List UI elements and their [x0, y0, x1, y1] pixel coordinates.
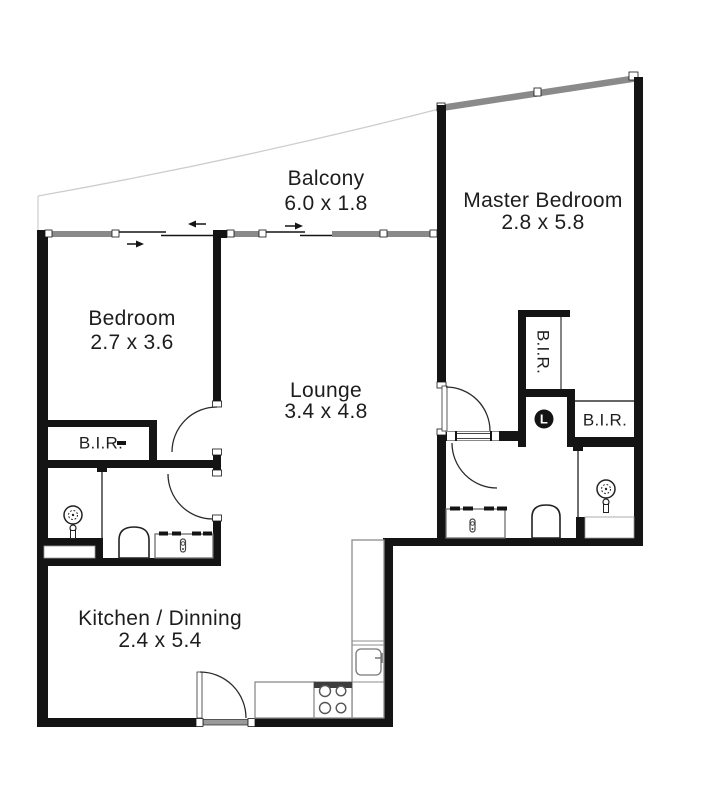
window-glass — [332, 231, 381, 237]
wall-bir-master-left — [518, 310, 526, 447]
stove-back-band — [314, 682, 352, 688]
wardrobe-handle — [117, 441, 126, 445]
slide-arrow-head — [136, 241, 144, 248]
wall-master-left-upper — [437, 105, 446, 385]
wall-bathroom-bottom — [37, 558, 221, 566]
door-arc-ensuite — [452, 443, 497, 488]
balcony-edge-curve — [38, 108, 443, 196]
door-jamb — [213, 401, 222, 407]
wall-bedroom-lounge-lower — [213, 518, 221, 566]
window-jamb — [259, 230, 266, 237]
wall-bedroom-lounge-upper — [213, 230, 221, 405]
stove-burner — [336, 703, 346, 713]
shower-head-dot — [72, 514, 74, 516]
kitchen-sink — [356, 649, 381, 675]
window-glass — [234, 231, 259, 237]
wall-bir-bedroom-right — [149, 420, 157, 462]
toilet-ensuite — [532, 505, 560, 538]
wall-bir-bedroom-top — [37, 420, 157, 427]
door-jamb — [213, 470, 222, 476]
wall-under-bathrooms — [383, 538, 643, 546]
door-jamb — [213, 515, 222, 521]
stove-burner — [336, 686, 346, 696]
shower-mixer-base — [71, 531, 76, 539]
slide-arrow-head — [295, 223, 303, 230]
vanity-tap-mark — [203, 532, 212, 536]
kitchen-counter-bottom — [255, 682, 315, 718]
window-jamb — [227, 230, 234, 237]
wall-niche — [585, 517, 634, 538]
kitchen-counter-strip — [352, 540, 384, 718]
window-jamb — [430, 230, 437, 237]
door-jamb — [213, 449, 222, 455]
vanity-tap-mark — [497, 507, 507, 511]
floorplan-svg — [0, 0, 703, 800]
entry-door-rail — [203, 720, 248, 726]
screen-handle — [97, 468, 107, 472]
wall-master-left-lower — [437, 432, 446, 546]
door-arc-bedroom — [172, 407, 217, 452]
vanity-tap-mark — [172, 532, 181, 536]
window-jamb — [45, 230, 52, 237]
door-opening — [212, 472, 222, 518]
wall-bathroom-top — [37, 460, 221, 468]
vanity-tap-mark — [159, 532, 168, 536]
slider-jamb-sep — [490, 431, 492, 441]
shower-mixer-base — [604, 505, 609, 513]
door-arc-entry — [200, 672, 246, 718]
vanity-tap-mark — [484, 507, 494, 511]
vanity-tap-mark — [192, 532, 201, 536]
door-jamb — [248, 719, 255, 727]
wall-left — [37, 230, 48, 727]
laundry-badge-circle — [535, 410, 554, 429]
stove-burner — [320, 686, 331, 697]
stove-burner — [320, 703, 331, 714]
window-glass — [387, 231, 431, 237]
vanity-tap-mark — [463, 507, 473, 511]
window-jamb — [112, 230, 119, 237]
toilet-bathroom — [119, 527, 149, 558]
shower-head-dot — [605, 488, 607, 490]
wall-niche — [44, 546, 95, 558]
window-jamb — [534, 88, 541, 96]
wall-bir-ensuite-bottom — [567, 437, 643, 447]
slider-jamb-sep — [455, 431, 457, 441]
wall-niche-stub — [95, 546, 103, 558]
window-glass — [52, 231, 112, 237]
vanity-faucet-dot — [182, 548, 184, 550]
wall-master-right — [634, 77, 643, 546]
window-jamb — [380, 230, 387, 237]
door-arc-master — [446, 387, 490, 431]
vanity-faucet-dot — [472, 528, 474, 530]
wall-ensuite-niche-stub — [576, 517, 585, 540]
slider-door-panel — [456, 434, 491, 439]
wall-bir-master-bottom — [518, 389, 575, 397]
door-leaf-master — [442, 386, 447, 431]
floorplan: Balcony6.0 x 1.8Master Bedroom2.8 x 5.8B… — [0, 0, 703, 800]
door-leaf-entry — [197, 672, 202, 718]
wall-shower-nook — [37, 538, 103, 546]
door-arc-bathroom — [168, 474, 213, 519]
slide-arrow-head — [188, 221, 196, 228]
screen-handle — [573, 447, 583, 451]
door-opening — [212, 404, 222, 452]
door-jamb — [196, 719, 203, 727]
vanity-tap-mark — [450, 507, 460, 511]
